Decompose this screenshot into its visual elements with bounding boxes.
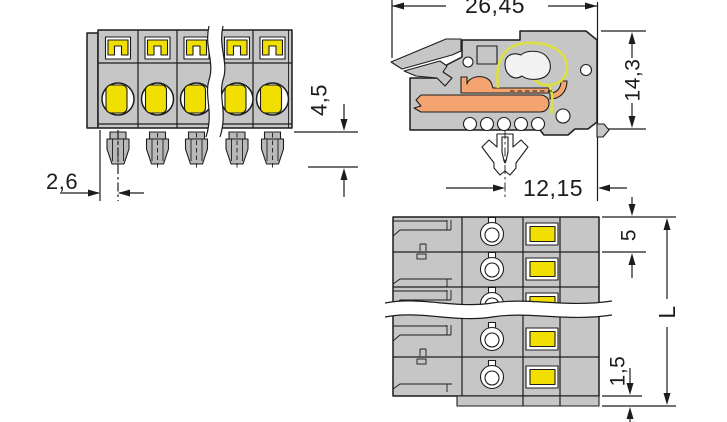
side-wire	[414, 95, 549, 112]
dim-foot-to-front: 12,15	[446, 175, 627, 201]
dim-overall-depth: 26,45	[392, 0, 597, 18]
dim-foot-to-front-label: 12,15	[523, 175, 583, 201]
front-view: 2,6 4,5	[46, 26, 358, 201]
top-view: 5 1,5 L	[385, 197, 680, 422]
side-snap-foot	[482, 130, 528, 199]
side-view: 26,45 14,3 12,15	[391, 0, 646, 201]
dim-end-wall: 1,5	[606, 356, 633, 422]
dim-overall-height: 14,3	[621, 32, 644, 128]
dim-end-wall-label: 1,5	[606, 356, 629, 387]
dimension-drawing: 2,6 4,5	[0, 0, 727, 422]
dim-overall-depth-label: 26,45	[465, 0, 525, 18]
dim-total-length: L	[654, 218, 680, 405]
front-pins	[107, 132, 284, 164]
side-spring-window	[505, 51, 550, 79]
front-break-band	[206, 26, 225, 137]
dim-pin-length: 4,5	[294, 84, 358, 197]
dim-pole-pitch-label: 5	[617, 229, 640, 241]
dim-pin-length-label: 4,5	[307, 84, 332, 116]
dim-overall-height-label: 14,3	[621, 59, 644, 102]
drawing-canvas: 2,6 4,5	[0, 0, 727, 422]
dim-total-length-label: L	[654, 305, 680, 318]
dim-pole-pitch: 5	[617, 197, 640, 278]
dim-pin-offset-label: 2,6	[46, 169, 78, 194]
